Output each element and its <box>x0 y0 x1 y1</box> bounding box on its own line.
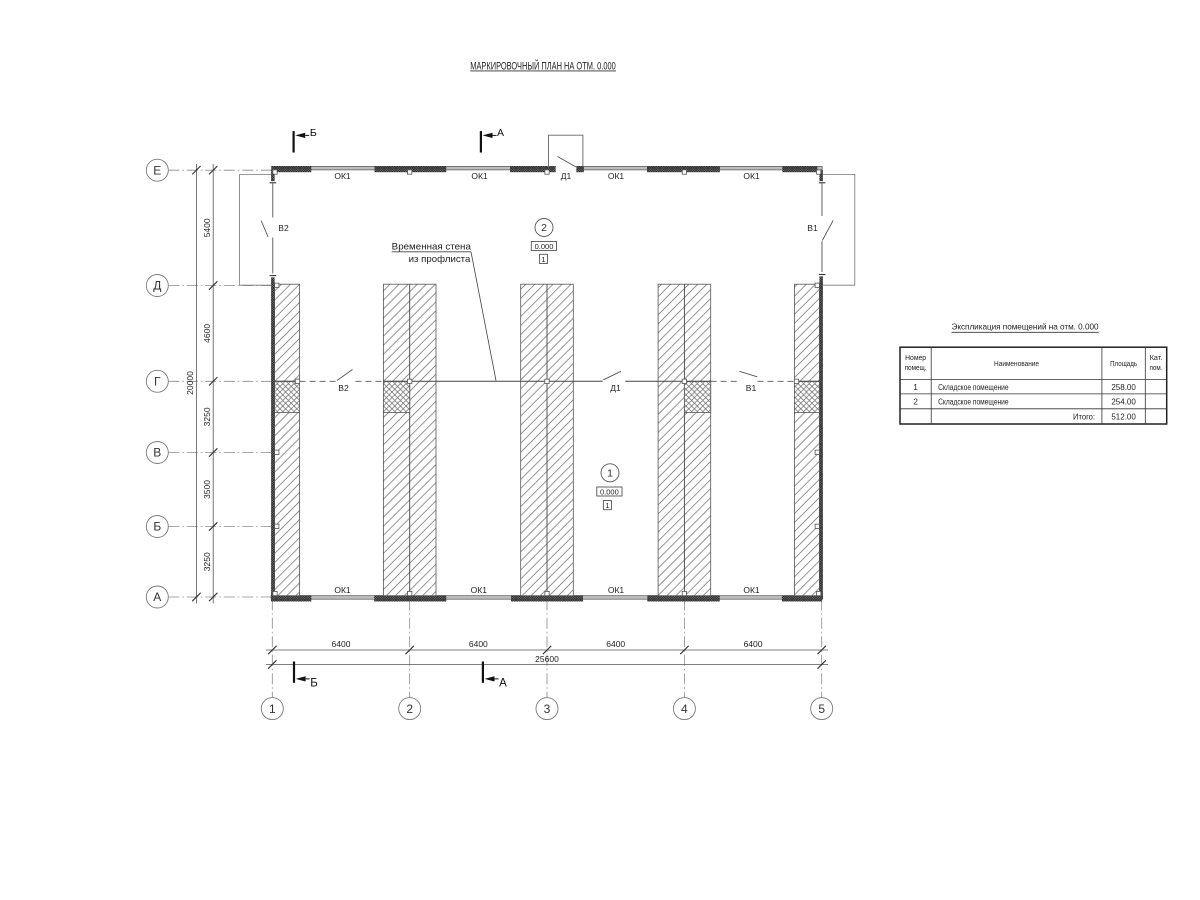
svg-text:Итого:: Итого: <box>1073 413 1095 422</box>
svg-text:6400: 6400 <box>469 639 488 649</box>
svg-text:А: А <box>153 590 161 604</box>
svg-text:ОК1: ОК1 <box>743 585 760 595</box>
svg-text:Б: Б <box>310 127 317 139</box>
svg-text:2: 2 <box>913 398 918 407</box>
svg-text:ОК1: ОК1 <box>471 585 488 595</box>
svg-text:5: 5 <box>818 702 825 716</box>
svg-text:помещ.: помещ. <box>905 363 927 372</box>
svg-text:ОК1: ОК1 <box>334 585 351 595</box>
svg-text:Площадь: Площадь <box>1110 359 1137 368</box>
svg-text:3: 3 <box>544 702 551 716</box>
svg-text:1: 1 <box>605 501 609 510</box>
svg-text:А: А <box>499 677 507 689</box>
svg-text:512.00: 512.00 <box>1111 413 1136 422</box>
svg-text:2: 2 <box>541 222 547 234</box>
svg-text:Б: Б <box>310 677 318 689</box>
svg-text:ОК1: ОК1 <box>608 171 625 181</box>
svg-text:Номер: Номер <box>905 353 926 362</box>
svg-text:пом.: пом. <box>1150 363 1163 372</box>
svg-text:В2: В2 <box>338 383 349 393</box>
svg-text:6400: 6400 <box>332 639 351 649</box>
svg-text:Е: Е <box>153 163 161 177</box>
svg-text:4: 4 <box>681 702 688 716</box>
svg-text:Б: Б <box>153 520 161 534</box>
svg-text:Д1: Д1 <box>561 171 572 181</box>
svg-text:6400: 6400 <box>744 639 763 649</box>
svg-text:4600: 4600 <box>202 324 212 343</box>
svg-text:А: А <box>497 127 504 139</box>
svg-text:Складское помещение: Складское помещение <box>938 383 1009 392</box>
svg-text:1: 1 <box>913 383 918 392</box>
svg-text:0.000: 0.000 <box>600 488 619 497</box>
svg-text:из профлиста: из профлиста <box>409 254 471 265</box>
svg-text:В1: В1 <box>746 383 757 393</box>
svg-text:В1: В1 <box>807 223 818 233</box>
svg-text:Д1: Д1 <box>610 383 621 393</box>
svg-text:ОК1: ОК1 <box>471 171 488 181</box>
svg-text:25600: 25600 <box>535 654 559 664</box>
svg-text:254.00: 254.00 <box>1111 398 1136 407</box>
svg-text:Складское помещение: Складское помещение <box>938 398 1009 407</box>
svg-text:ОК1: ОК1 <box>334 171 351 181</box>
svg-text:В: В <box>153 446 161 460</box>
svg-text:Экспликация помещений на отм.: Экспликация помещений на отм. 0.000 <box>952 322 1099 332</box>
svg-text:Временная стена: Временная стена <box>392 241 472 252</box>
svg-text:1: 1 <box>541 255 545 264</box>
svg-text:Кат.: Кат. <box>1150 353 1163 362</box>
svg-text:0.000: 0.000 <box>535 242 554 251</box>
svg-text:1: 1 <box>607 468 613 480</box>
svg-text:В2: В2 <box>278 223 289 233</box>
svg-text:1: 1 <box>269 702 276 716</box>
svg-text:МАРКИРОВОЧНЫЙ ПЛАН НА ОТМ. 0.0: МАРКИРОВОЧНЫЙ ПЛАН НА ОТМ. 0.000 <box>470 59 616 72</box>
svg-text:3500: 3500 <box>202 480 212 499</box>
svg-text:Наименование: Наименование <box>994 359 1039 368</box>
svg-text:5400: 5400 <box>202 218 212 237</box>
svg-text:Д: Д <box>153 279 161 293</box>
svg-text:20000: 20000 <box>185 371 195 395</box>
svg-text:3250: 3250 <box>202 407 212 426</box>
svg-text:ОК1: ОК1 <box>608 585 625 595</box>
svg-text:3250: 3250 <box>202 552 212 571</box>
svg-text:258.00: 258.00 <box>1111 383 1136 392</box>
svg-text:Г: Г <box>154 375 161 389</box>
svg-text:ОК1: ОК1 <box>743 171 760 181</box>
svg-text:2: 2 <box>406 702 413 716</box>
svg-text:6400: 6400 <box>606 639 625 649</box>
